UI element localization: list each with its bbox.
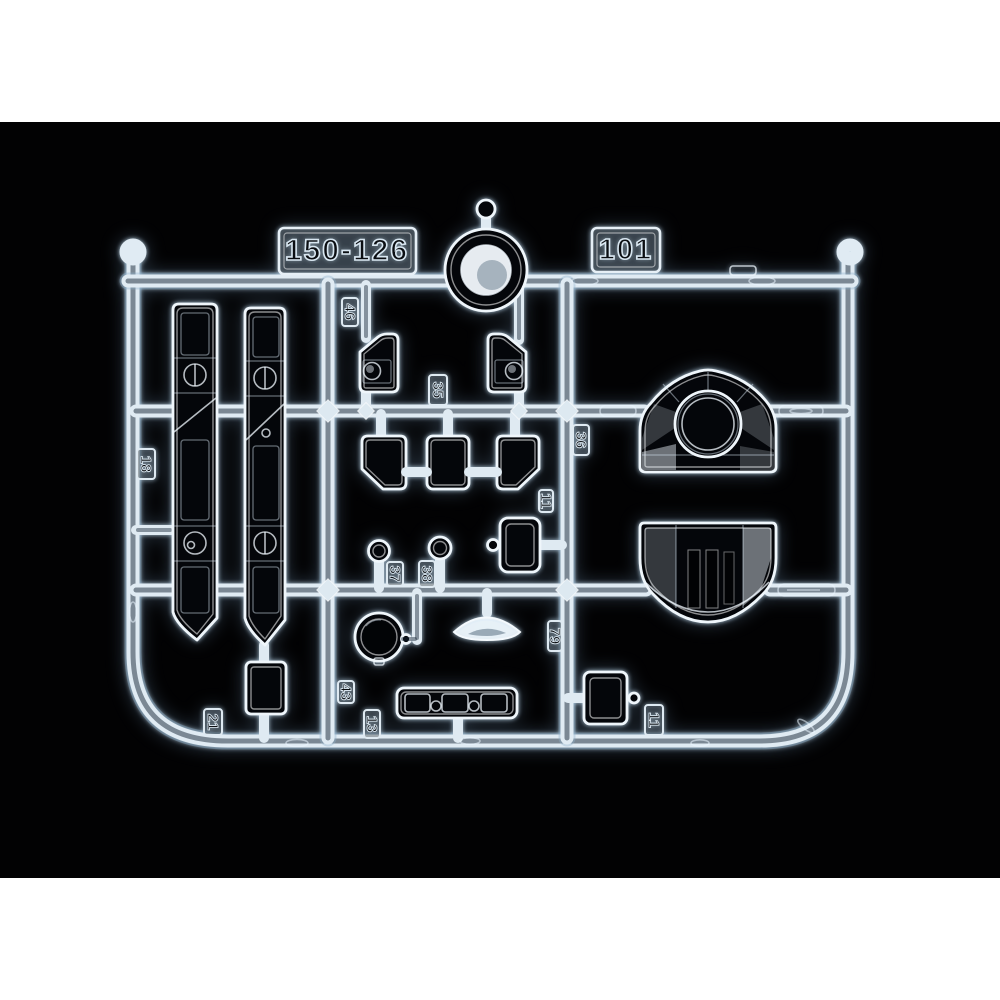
ball-pin bbox=[629, 693, 639, 703]
side-window-left bbox=[362, 436, 406, 489]
lower-window-panel bbox=[246, 662, 286, 714]
tag-35: 35 bbox=[429, 382, 446, 399]
tag-43: 43 bbox=[337, 684, 354, 701]
small-window-frame-center bbox=[488, 518, 541, 572]
clear-sprue-photo: 150-126 101 bbox=[0, 122, 1000, 878]
instrument-cluster-cover bbox=[640, 370, 776, 472]
sprue-id-plate: 101 bbox=[592, 228, 660, 272]
side-window-center bbox=[427, 436, 469, 489]
tag-11b: 11 bbox=[645, 712, 662, 728]
product-photo-canvas: 150-126 101 bbox=[0, 0, 1000, 1000]
headlight-lens-large bbox=[355, 613, 415, 665]
tag-38: 38 bbox=[418, 566, 435, 583]
part-number-text: 150-126 bbox=[285, 234, 409, 267]
windshield bbox=[640, 523, 776, 622]
part-number-plate: 150-126 bbox=[279, 228, 416, 274]
ball-pin bbox=[488, 540, 499, 551]
small-window-frame-right bbox=[584, 672, 639, 724]
roof-light-bar-lens bbox=[397, 688, 517, 718]
tag-13: 13 bbox=[363, 716, 380, 733]
tag-79: 79 bbox=[546, 628, 563, 645]
tag-36: 36 bbox=[572, 432, 589, 449]
round-lens-small-right bbox=[429, 537, 451, 559]
sprue-gate-disc bbox=[445, 200, 527, 311]
round-lens-small-left bbox=[369, 541, 390, 562]
sprue-id-text: 101 bbox=[599, 234, 653, 266]
tag-11a: 11 bbox=[537, 493, 554, 509]
window-strip-right bbox=[245, 308, 285, 645]
window-strip-left bbox=[173, 304, 217, 640]
sun-visor-lens bbox=[454, 618, 520, 641]
black-photo-area: 150-126 101 bbox=[0, 122, 1000, 878]
sprue-runner-frame bbox=[126, 245, 857, 741]
tag-37: 37 bbox=[386, 566, 403, 583]
tag-18: 18 bbox=[137, 456, 154, 473]
runner-marks bbox=[129, 277, 835, 747]
side-window-right bbox=[497, 436, 539, 489]
tag-21: 21 bbox=[204, 714, 221, 731]
tag-46: 46 bbox=[341, 304, 358, 321]
